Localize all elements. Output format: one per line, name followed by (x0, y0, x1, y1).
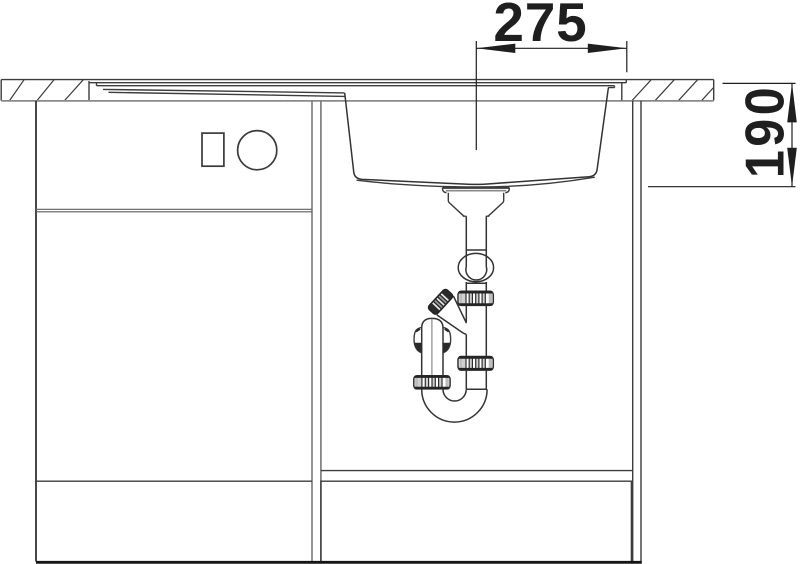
svg-text:190: 190 (734, 84, 796, 178)
